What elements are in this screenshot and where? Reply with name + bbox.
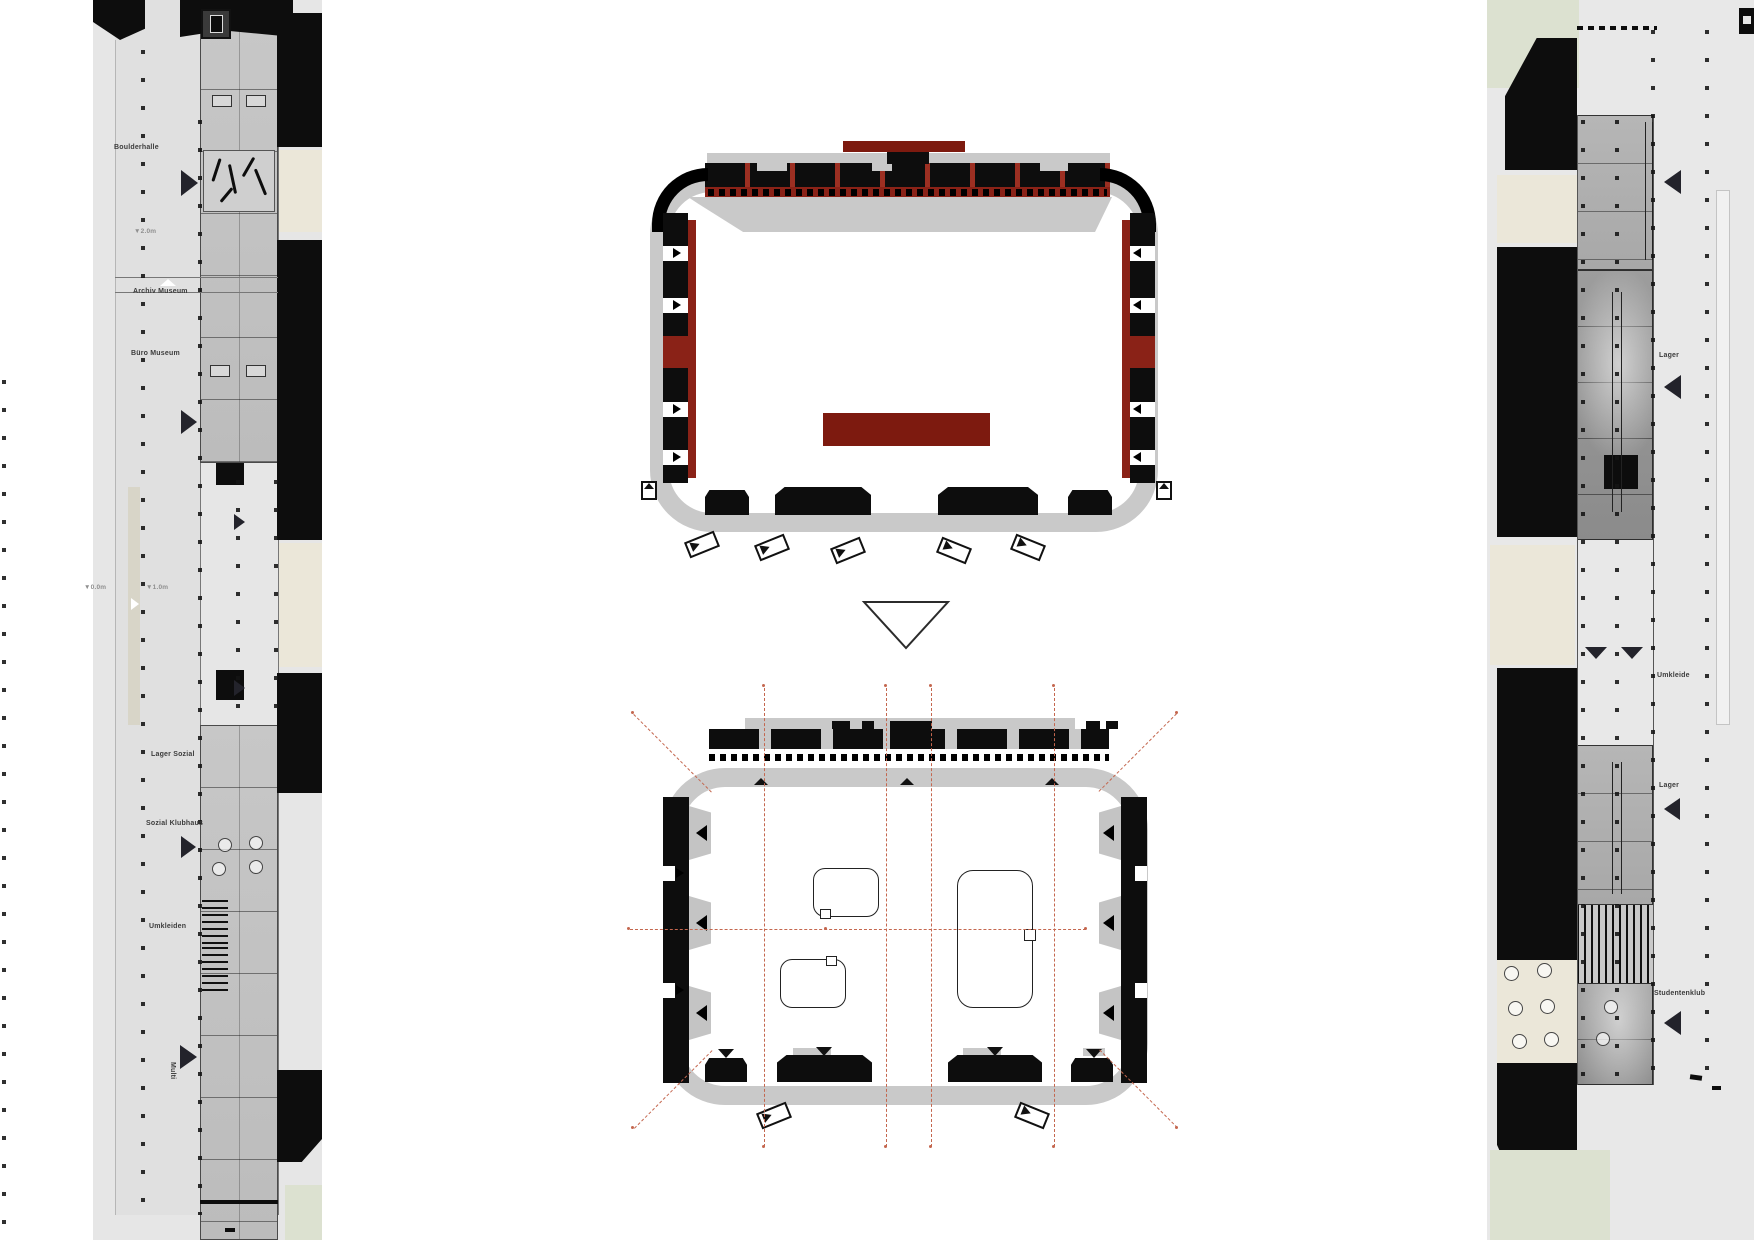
arena-top-seat-strip [709,752,1109,762]
boulder-room [203,150,275,212]
stage-banner [843,141,965,152]
stand-block [1068,490,1112,515]
room-label-umkleide: Umkleide [1657,672,1690,679]
axis-end-dot [929,1145,932,1148]
room-label-lager-mid: Lager [1659,782,1679,789]
boulder-hold-mark [242,157,256,178]
room-label-archiv-museum: Archiv Museum [133,288,188,295]
axis-end-dot [884,684,887,687]
elevator-car [210,15,223,33]
gallery-bump [1106,721,1118,729]
entrance-arrow-icon [181,170,198,196]
stand-block [938,487,1038,515]
court-outline [957,870,1033,1008]
entrance-arrow-icon [180,1045,197,1069]
stand-notch [1135,983,1147,998]
bench-hatch [202,900,228,944]
stand-gap [663,450,688,465]
exit-arrow-icon [644,483,654,489]
gallery-bump [1086,721,1100,729]
gap-arrow-icon [673,404,681,414]
right-green-texture-bottom [1490,1150,1610,1240]
court-notch [1024,929,1036,941]
gap-arrow-icon [1133,248,1141,258]
left-stand-rail [688,220,696,478]
court-notch [820,909,831,919]
room-label-umkleiden: Umkleiden [149,923,186,930]
entrance-arrow-icon [1664,1011,1681,1035]
stand-gap [1130,246,1155,261]
table-icon [249,860,263,874]
tab-arrow-icon [1103,825,1114,841]
left-stand-blocks [663,797,689,1083]
table-icon [1504,966,1519,981]
south-tick-icon [816,1047,832,1056]
desk-icon [210,365,230,377]
down-arrow-icon [1621,647,1643,659]
stand-gap [1130,450,1155,465]
axis-end-dot [1175,1126,1178,1129]
grid-ticks [198,120,202,1215]
north-tick-icon [1045,778,1059,785]
level-mark: ▼1.0m [146,585,168,592]
table-icon [1604,1000,1618,1014]
down-arrow-icon [1585,647,1607,659]
left-room-column-upper [200,27,278,463]
axis-end-dot [1084,927,1087,930]
right-black-c [1497,668,1577,960]
axis-end-dot [1175,711,1178,714]
stand-gap [663,402,688,417]
gap-arrow-icon [673,248,681,258]
room-label-boulderhalle: Boulderhalle [114,144,159,151]
gap-arrow-icon [1133,452,1141,462]
left-edge-ticks [2,380,6,1240]
gallery-bump [832,721,850,729]
court-notch [826,956,837,966]
table-icon [1544,1032,1559,1047]
entrance-arrow-icon [1664,798,1680,820]
left-cream-b [279,543,322,667]
right-cream-top [1497,175,1577,243]
boulder-hold-mark [211,158,221,182]
gallery-notch [1040,163,1068,171]
grid-ticks-row [1577,26,1657,30]
left-bottom-wall [200,1200,278,1204]
desk-icon [212,95,232,107]
small-mark [1712,1086,1721,1090]
stand-tab [689,986,711,1040]
stand-tab [689,806,711,860]
seat-dots [709,754,1109,761]
left-bottom-tick [225,1228,235,1232]
room-label-multi: Multi [169,1062,176,1079]
stand-tab [1099,806,1121,860]
door-swing-icon [936,537,972,565]
grid-ticks [141,50,145,1215]
door-swing-icon [684,531,720,559]
right-cream-mid [1490,545,1575,665]
axis-line-vertical [1054,688,1055,1147]
room-label-sozial-klubhaus: Sozial Klubhaus [146,820,203,827]
north-tick-icon [754,778,768,785]
tab-arrow-icon [696,825,707,841]
door-swing-icon [1010,534,1046,562]
entrance-arrow-icon [1664,375,1681,399]
left-corridor-line [115,40,116,1215]
tab-arrow-icon [1103,915,1114,931]
door-swing-icon [1014,1102,1050,1130]
gallery-bump [862,721,874,729]
seat-dots [708,189,1107,196]
bench-hatch [202,947,228,991]
arena-top-seat-strip [705,187,1110,198]
stand-block [1071,1058,1113,1082]
door-swing-icon [756,1102,792,1130]
stand-tab [1099,896,1121,950]
grid-ticks [1581,120,1585,1080]
gallery-notch [872,163,892,171]
axis-end-dot [762,684,765,687]
table-icon [218,838,232,852]
elevator-icon [201,9,231,39]
stand-block [705,490,749,515]
room-label-studentenklub: Studentenklub [1654,990,1705,997]
stage-rectangle [823,413,990,446]
right-wall-line [1577,115,1578,1085]
notch-arrow-icon [676,868,684,878]
level-mark: ▼2.0m [134,229,156,236]
grid-ticks [1705,30,1709,1085]
entrance-arrow-icon [181,836,196,858]
room-label-lager-top: Lager [1659,352,1679,359]
axis-end-dot [631,711,634,714]
stand-tab [1099,986,1121,1040]
arena-top-apron [688,197,1112,232]
rooftop-box-icon [1739,8,1754,34]
grid-ticks [1615,120,1619,1080]
room-label-buero-museum: Büro Museum [131,350,180,357]
axis-end-dot [762,1145,765,1148]
level-mark: ▼0.0m [84,585,106,592]
stand-gap [1130,402,1155,417]
door-arrow-icon [1016,537,1033,552]
room-label-lager-sozial: Lager Sozial [151,751,195,758]
south-tick-icon [987,1047,1003,1056]
exit-arrow-icon [1159,483,1169,489]
left-black-right-a [277,13,322,147]
north-tick-icon [900,778,914,785]
right-stand-rail [1122,220,1130,478]
notch-arrow-icon [676,985,684,995]
desk-icon [246,95,266,107]
door-arrow-icon [689,537,706,552]
table-icon [1540,999,1555,1014]
boulder-hold-mark [254,168,267,195]
entrance-arrow-icon [181,410,197,434]
gallery-notch [757,163,787,171]
stand-block [777,1055,872,1082]
door-arrow-icon [942,540,959,555]
axis-line-horizontal [630,929,1086,930]
gap-arrow-icon [673,452,681,462]
stand-block [948,1055,1042,1082]
gallery-center-block [890,721,932,749]
axis-line-vertical [764,688,765,1147]
axis-end-dot [1052,684,1055,687]
axis-line-diagonal [633,714,711,792]
left-stand-red-block [663,336,688,368]
south-tick-icon [718,1049,734,1058]
axis-end-dot [631,1126,634,1129]
left-black-right-b [277,240,322,540]
rooftop-box-window [1743,16,1751,24]
table-icon [212,862,226,876]
door-arrow-icon [759,540,776,555]
axis-end-dot [1052,1145,1055,1148]
entrance-arrow-icon [1664,170,1681,194]
court-outline [780,959,846,1008]
arena-ring [663,768,1148,1105]
tab-arrow-icon [1103,1005,1114,1021]
gap-arrow-icon [1133,300,1141,310]
stand-notch [663,866,675,881]
door-swing-icon [830,537,866,565]
gap-arrow-icon [673,300,681,310]
axis-end-dot [884,1145,887,1148]
stand-gap [663,246,688,261]
axis-end-dot [824,927,827,930]
transform-arrow-icon [860,598,952,652]
right-light-band [1716,190,1730,725]
axis-line-vertical [931,688,932,1147]
grid-ticks [1651,30,1655,1085]
left-cream-a [279,150,322,232]
axis-end-dot [929,684,932,687]
left-green-texture [285,1185,322,1240]
axis-line-vertical [886,688,887,1147]
stand-gap [663,298,688,313]
grid-ticks [236,480,240,730]
small-white-arrow-icon [131,598,139,610]
exit-icon [1156,481,1172,500]
left-black-right-c [277,673,322,793]
door-arrow-icon [1020,1105,1037,1120]
table-icon [1537,963,1552,978]
stand-notch [1135,866,1147,881]
table-icon [1508,1001,1523,1016]
stand-tab [689,896,711,950]
floor-plan-sheet: Boulderhalle ▼2.0m Archiv Museum Büro Mu… [0,0,1754,1240]
right-stand-red-block [1130,336,1155,368]
stand-block [705,1058,747,1082]
door-swing-icon [754,534,790,562]
boulder-hold-mark [220,187,234,203]
right-black-b [1497,247,1577,537]
table-icon [1596,1032,1610,1046]
table-icon [1512,1034,1527,1049]
stand-gap [1130,298,1155,313]
exit-icon [641,481,657,500]
gap-arrow-icon [1133,404,1141,414]
table-icon [249,836,263,850]
tab-arrow-icon [696,1005,707,1021]
axis-end-dot [627,927,630,930]
right-stand-blocks [1121,797,1147,1083]
desk-icon [246,365,266,377]
door-arrow-icon [835,543,852,558]
stand-notch [663,983,675,998]
stand-block [775,487,871,515]
up-arrow-icon [160,279,176,286]
grid-ticks [274,480,278,730]
left-section-line [115,277,278,278]
